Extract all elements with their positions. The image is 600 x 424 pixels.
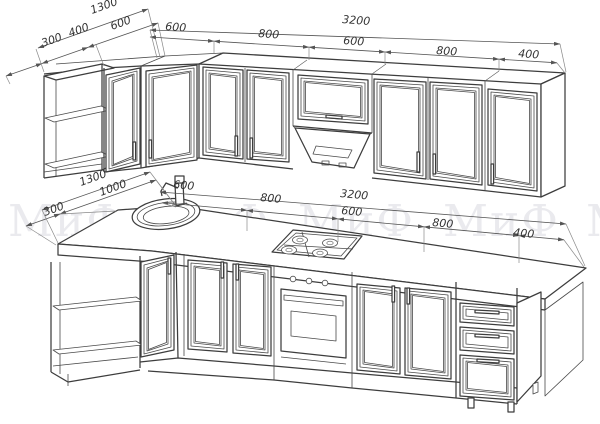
door-handle-icon bbox=[149, 140, 152, 158]
drawing-canvas: МиФ МиФ МиФ МиФ МиФ bbox=[0, 0, 600, 424]
extension-line bbox=[557, 63, 565, 73]
right-end-panel bbox=[545, 282, 583, 396]
dim-label: 400 bbox=[513, 226, 535, 241]
kitchen-technical-drawing: МиФ МиФ МиФ МиФ МиФ bbox=[0, 0, 600, 424]
dim-label: 300 bbox=[40, 30, 64, 49]
door-handle-icon bbox=[475, 334, 499, 338]
door-handle-icon bbox=[236, 264, 239, 280]
dim-label: 400 bbox=[67, 20, 91, 39]
dimension-line bbox=[42, 47, 88, 63]
dim-label: 800 bbox=[432, 216, 454, 231]
extension-line bbox=[158, 23, 165, 56]
watermark-text: МиФ bbox=[586, 196, 600, 247]
dim-label: 600 bbox=[343, 34, 365, 48]
door-handle-icon bbox=[250, 138, 253, 158]
extension-line bbox=[150, 30, 157, 58]
dimension-line bbox=[214, 41, 309, 47]
extractor-hood bbox=[293, 126, 372, 168]
extension-line bbox=[566, 224, 585, 266]
dim-label: 600 bbox=[109, 13, 133, 32]
dimension-line bbox=[150, 37, 214, 41]
dim-label: 400 bbox=[518, 47, 540, 61]
dim-label: 600 bbox=[173, 178, 195, 193]
dim-label: 800 bbox=[260, 191, 282, 206]
dimension-line bbox=[6, 64, 42, 77]
dim-label: 800 bbox=[258, 27, 280, 41]
dim-label: 3200 bbox=[340, 187, 369, 202]
extension-line bbox=[96, 45, 104, 66]
door-handle-icon bbox=[475, 310, 499, 314]
dimension-line bbox=[309, 47, 385, 52]
dim-label: 1300 bbox=[89, 0, 120, 17]
watermark-text: МиФ bbox=[443, 196, 560, 247]
upper-cabinets bbox=[44, 53, 565, 197]
extension-line bbox=[6, 76, 10, 84]
door-handle-icon bbox=[235, 136, 238, 156]
dim-label: 600 bbox=[341, 204, 363, 219]
door-handle-icon bbox=[133, 142, 136, 160]
dim-label: 800 bbox=[436, 44, 458, 58]
door-handle-icon bbox=[477, 359, 499, 363]
door-handle-icon bbox=[221, 262, 224, 278]
dim-label: 3200 bbox=[342, 13, 371, 28]
lower-open-shelf bbox=[51, 256, 142, 386]
dim-label: 600 bbox=[165, 20, 187, 34]
oven bbox=[281, 276, 346, 364]
door-handle-icon bbox=[417, 152, 420, 172]
door-handle-icon bbox=[491, 164, 494, 184]
door-handle-icon bbox=[168, 258, 171, 274]
extension-line bbox=[36, 49, 44, 72]
door-part bbox=[460, 327, 514, 354]
door-part bbox=[405, 288, 451, 379]
extension-line bbox=[564, 240, 584, 267]
door-handle-icon bbox=[433, 154, 436, 174]
door-handle-icon bbox=[407, 288, 410, 304]
door-handle-icon bbox=[392, 286, 395, 302]
extension-line bbox=[148, 9, 160, 57]
door-handle-icon bbox=[326, 115, 342, 119]
